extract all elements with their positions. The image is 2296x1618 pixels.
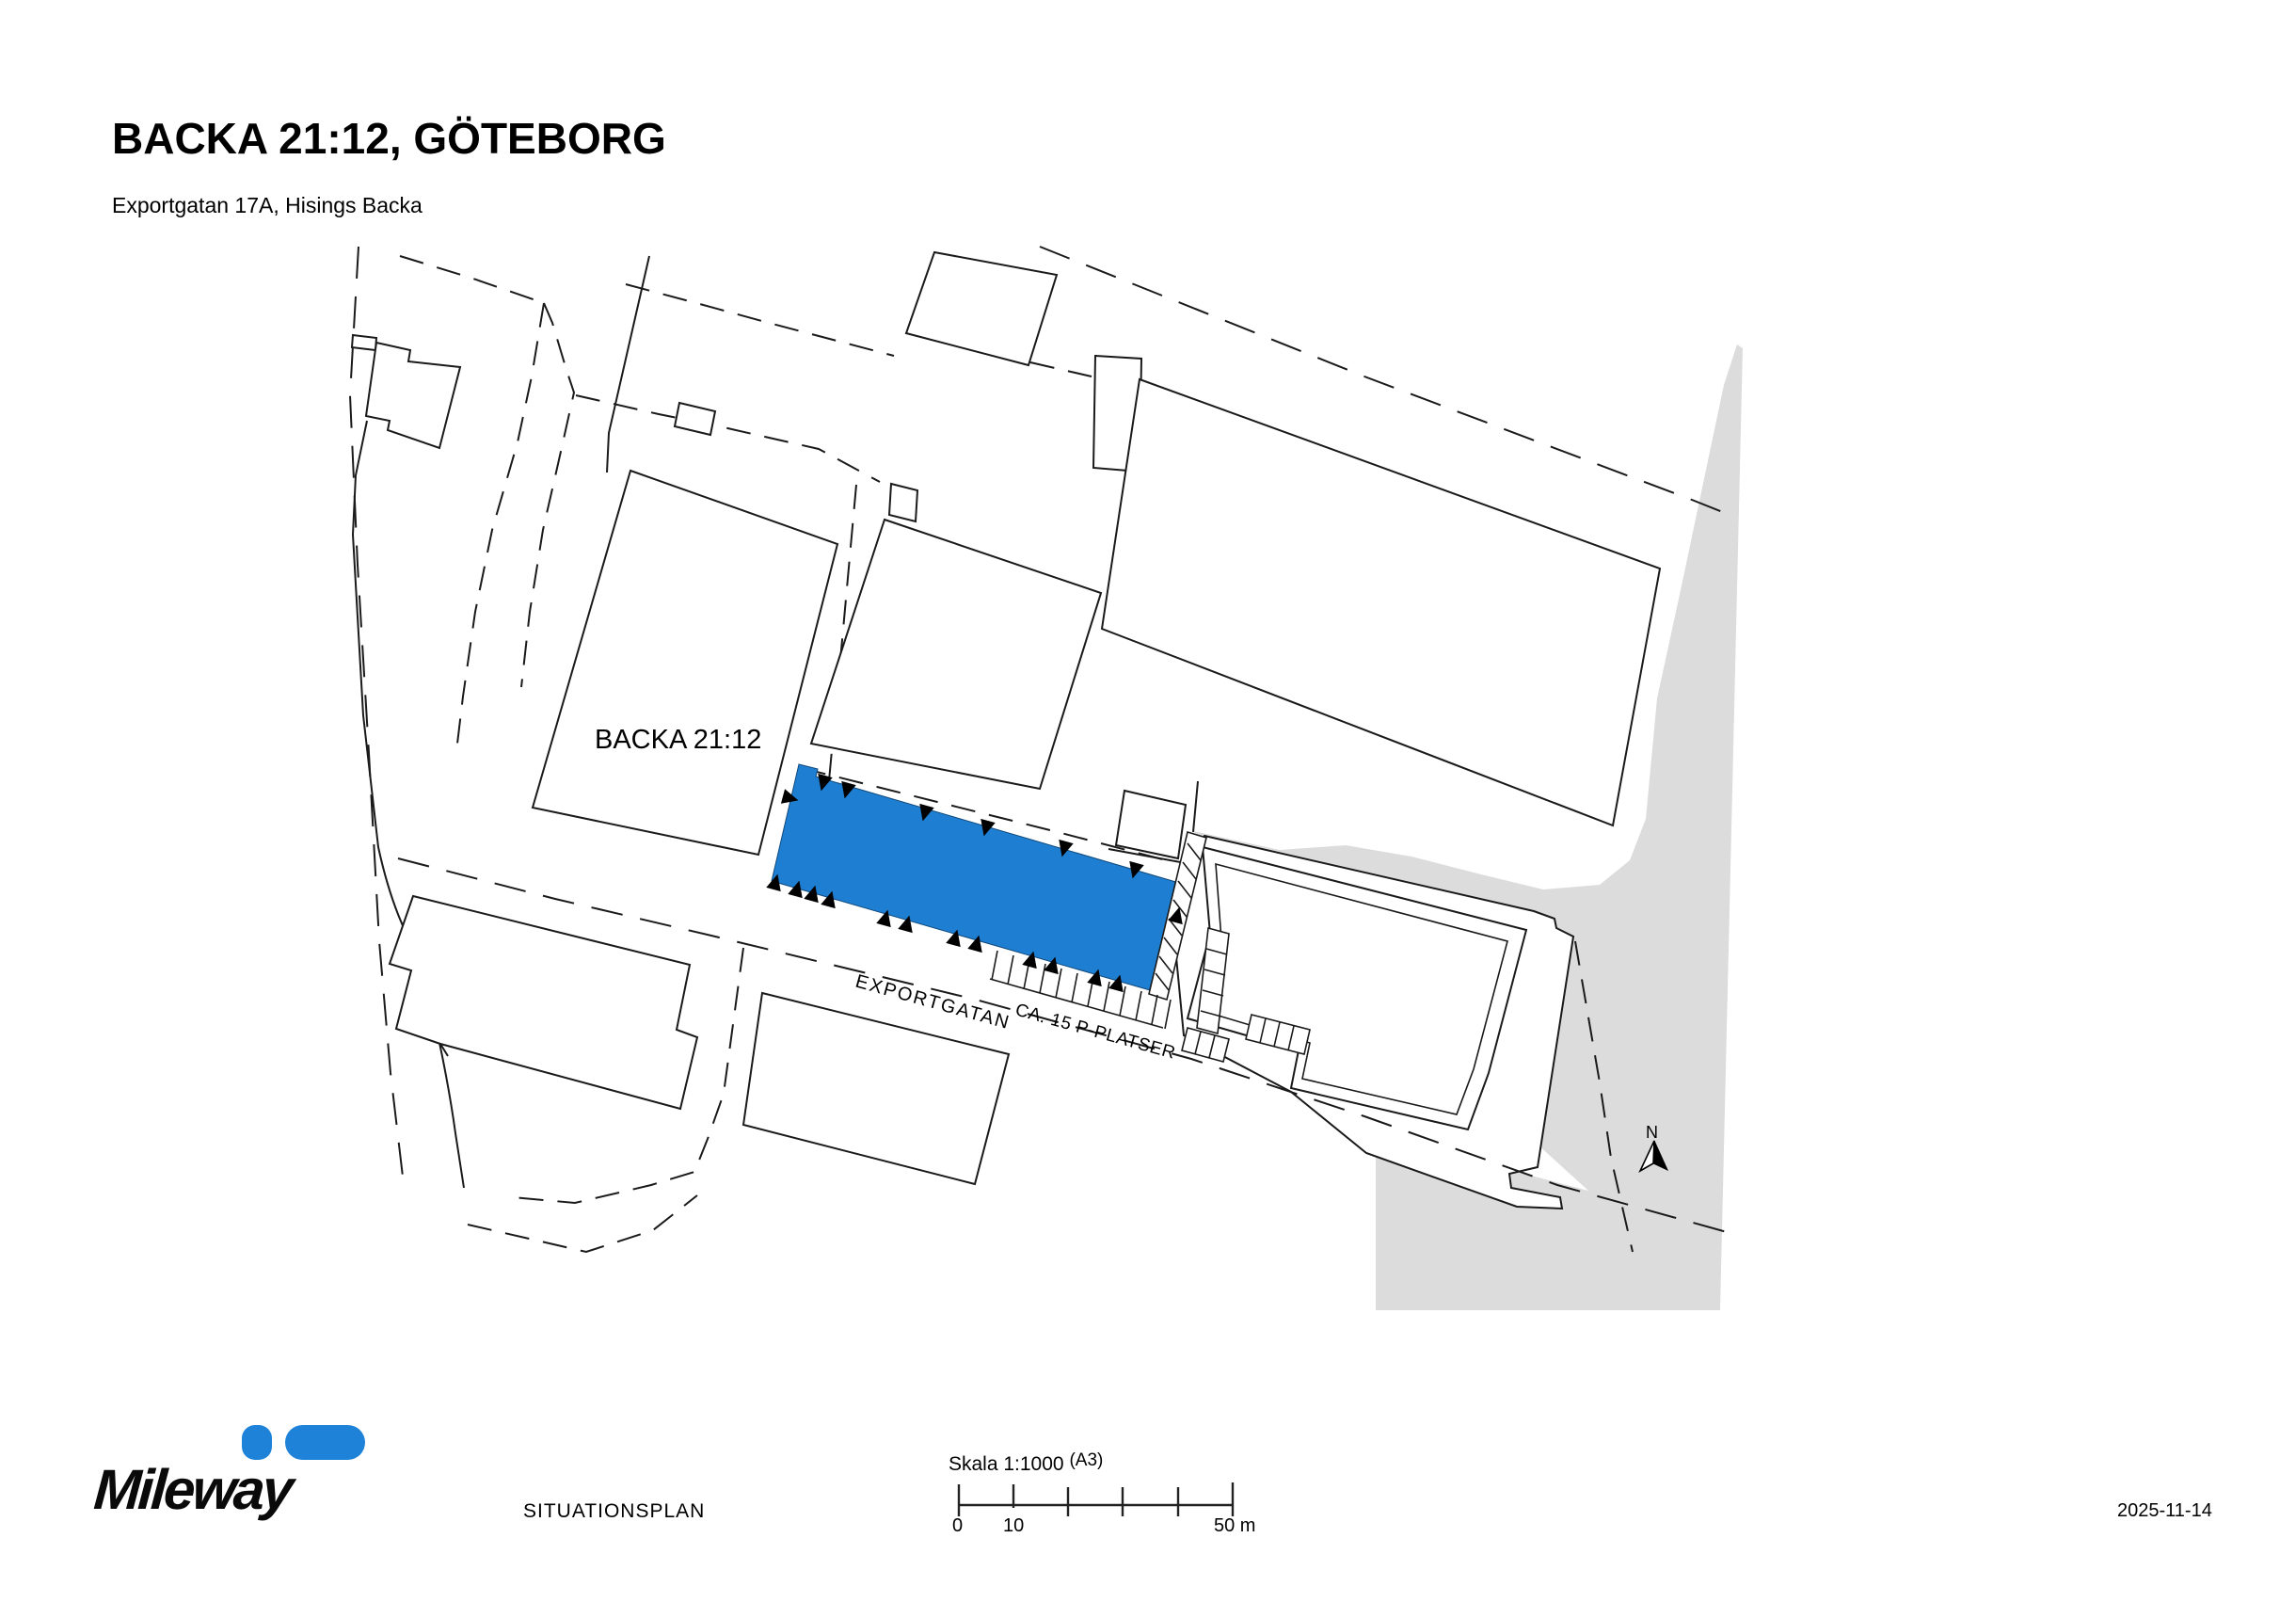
building-nw-box [352, 335, 376, 350]
mileway-logo: Mileway [94, 1412, 395, 1525]
subject-building [772, 764, 1179, 990]
paper-size-label: (A3) [1069, 1450, 1103, 1470]
building-ne-large [1102, 379, 1660, 825]
building-nw [366, 343, 460, 448]
logo-pill-icon [285, 1425, 365, 1460]
logo-wordmark: Mileway [92, 1457, 294, 1522]
scale-tick-0: 0 [952, 1515, 963, 1537]
scale-bar [959, 1482, 1233, 1516]
parcel-label: BACKA 21:12 [595, 725, 761, 755]
building-middle-box [889, 484, 917, 521]
north-label: N [1646, 1123, 1658, 1142]
scale-tick-10: 10 [1003, 1515, 1024, 1537]
situationsplan-page: BACKA 21:12, GÖTEBORG Exportgatan 17A, H… [0, 0, 2296, 1618]
scale-tick-50: 50 m [1214, 1515, 1255, 1537]
scale-label: Skala 1:1000 (A3) [949, 1453, 1103, 1476]
building-outlines [352, 252, 1660, 1184]
logo-dot-icon [242, 1425, 272, 1460]
scale-text: Skala 1:1000 [949, 1453, 1064, 1475]
date-label: 2025-11-14 [2117, 1500, 2212, 1522]
doc-type-label: SITUATIONSPLAN [523, 1500, 705, 1523]
building-sw [390, 896, 697, 1109]
building-small-ne [1116, 791, 1186, 858]
site-plan-map: BACKA 21:12 EXPORTGATAN CA. 15 P-PLATSER… [0, 0, 2296, 1618]
building-top-center [906, 252, 1057, 365]
building-middle [811, 520, 1101, 789]
parking-label: CA. 15 P-PLATSER [1013, 1001, 1178, 1064]
utility-box [675, 403, 715, 435]
